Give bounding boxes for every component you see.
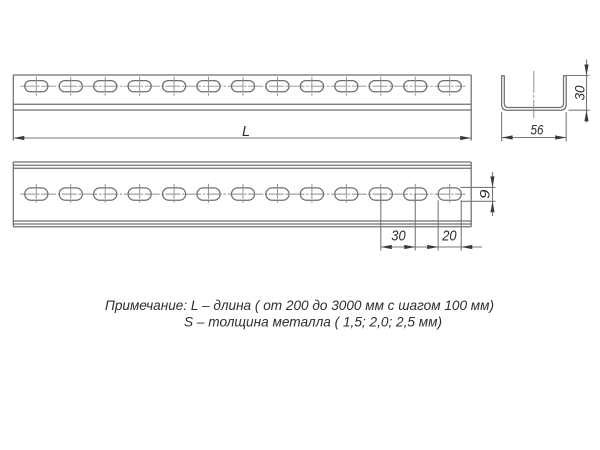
svg-text:L: L [242,124,250,140]
svg-text:20: 20 [441,227,457,244]
svg-text:S – толщина металла ( 1,5; 2,0: S – толщина металла ( 1,5; 2,0; 2,5 мм) [184,314,442,330]
svg-text:Примечание: L – длина ( от 200: Примечание: L – длина ( от 200 до 3000 м… [105,297,494,313]
svg-text:56: 56 [531,121,544,137]
svg-text:30: 30 [391,227,406,244]
svg-text:9: 9 [476,189,492,199]
svg-text:30: 30 [572,85,588,100]
